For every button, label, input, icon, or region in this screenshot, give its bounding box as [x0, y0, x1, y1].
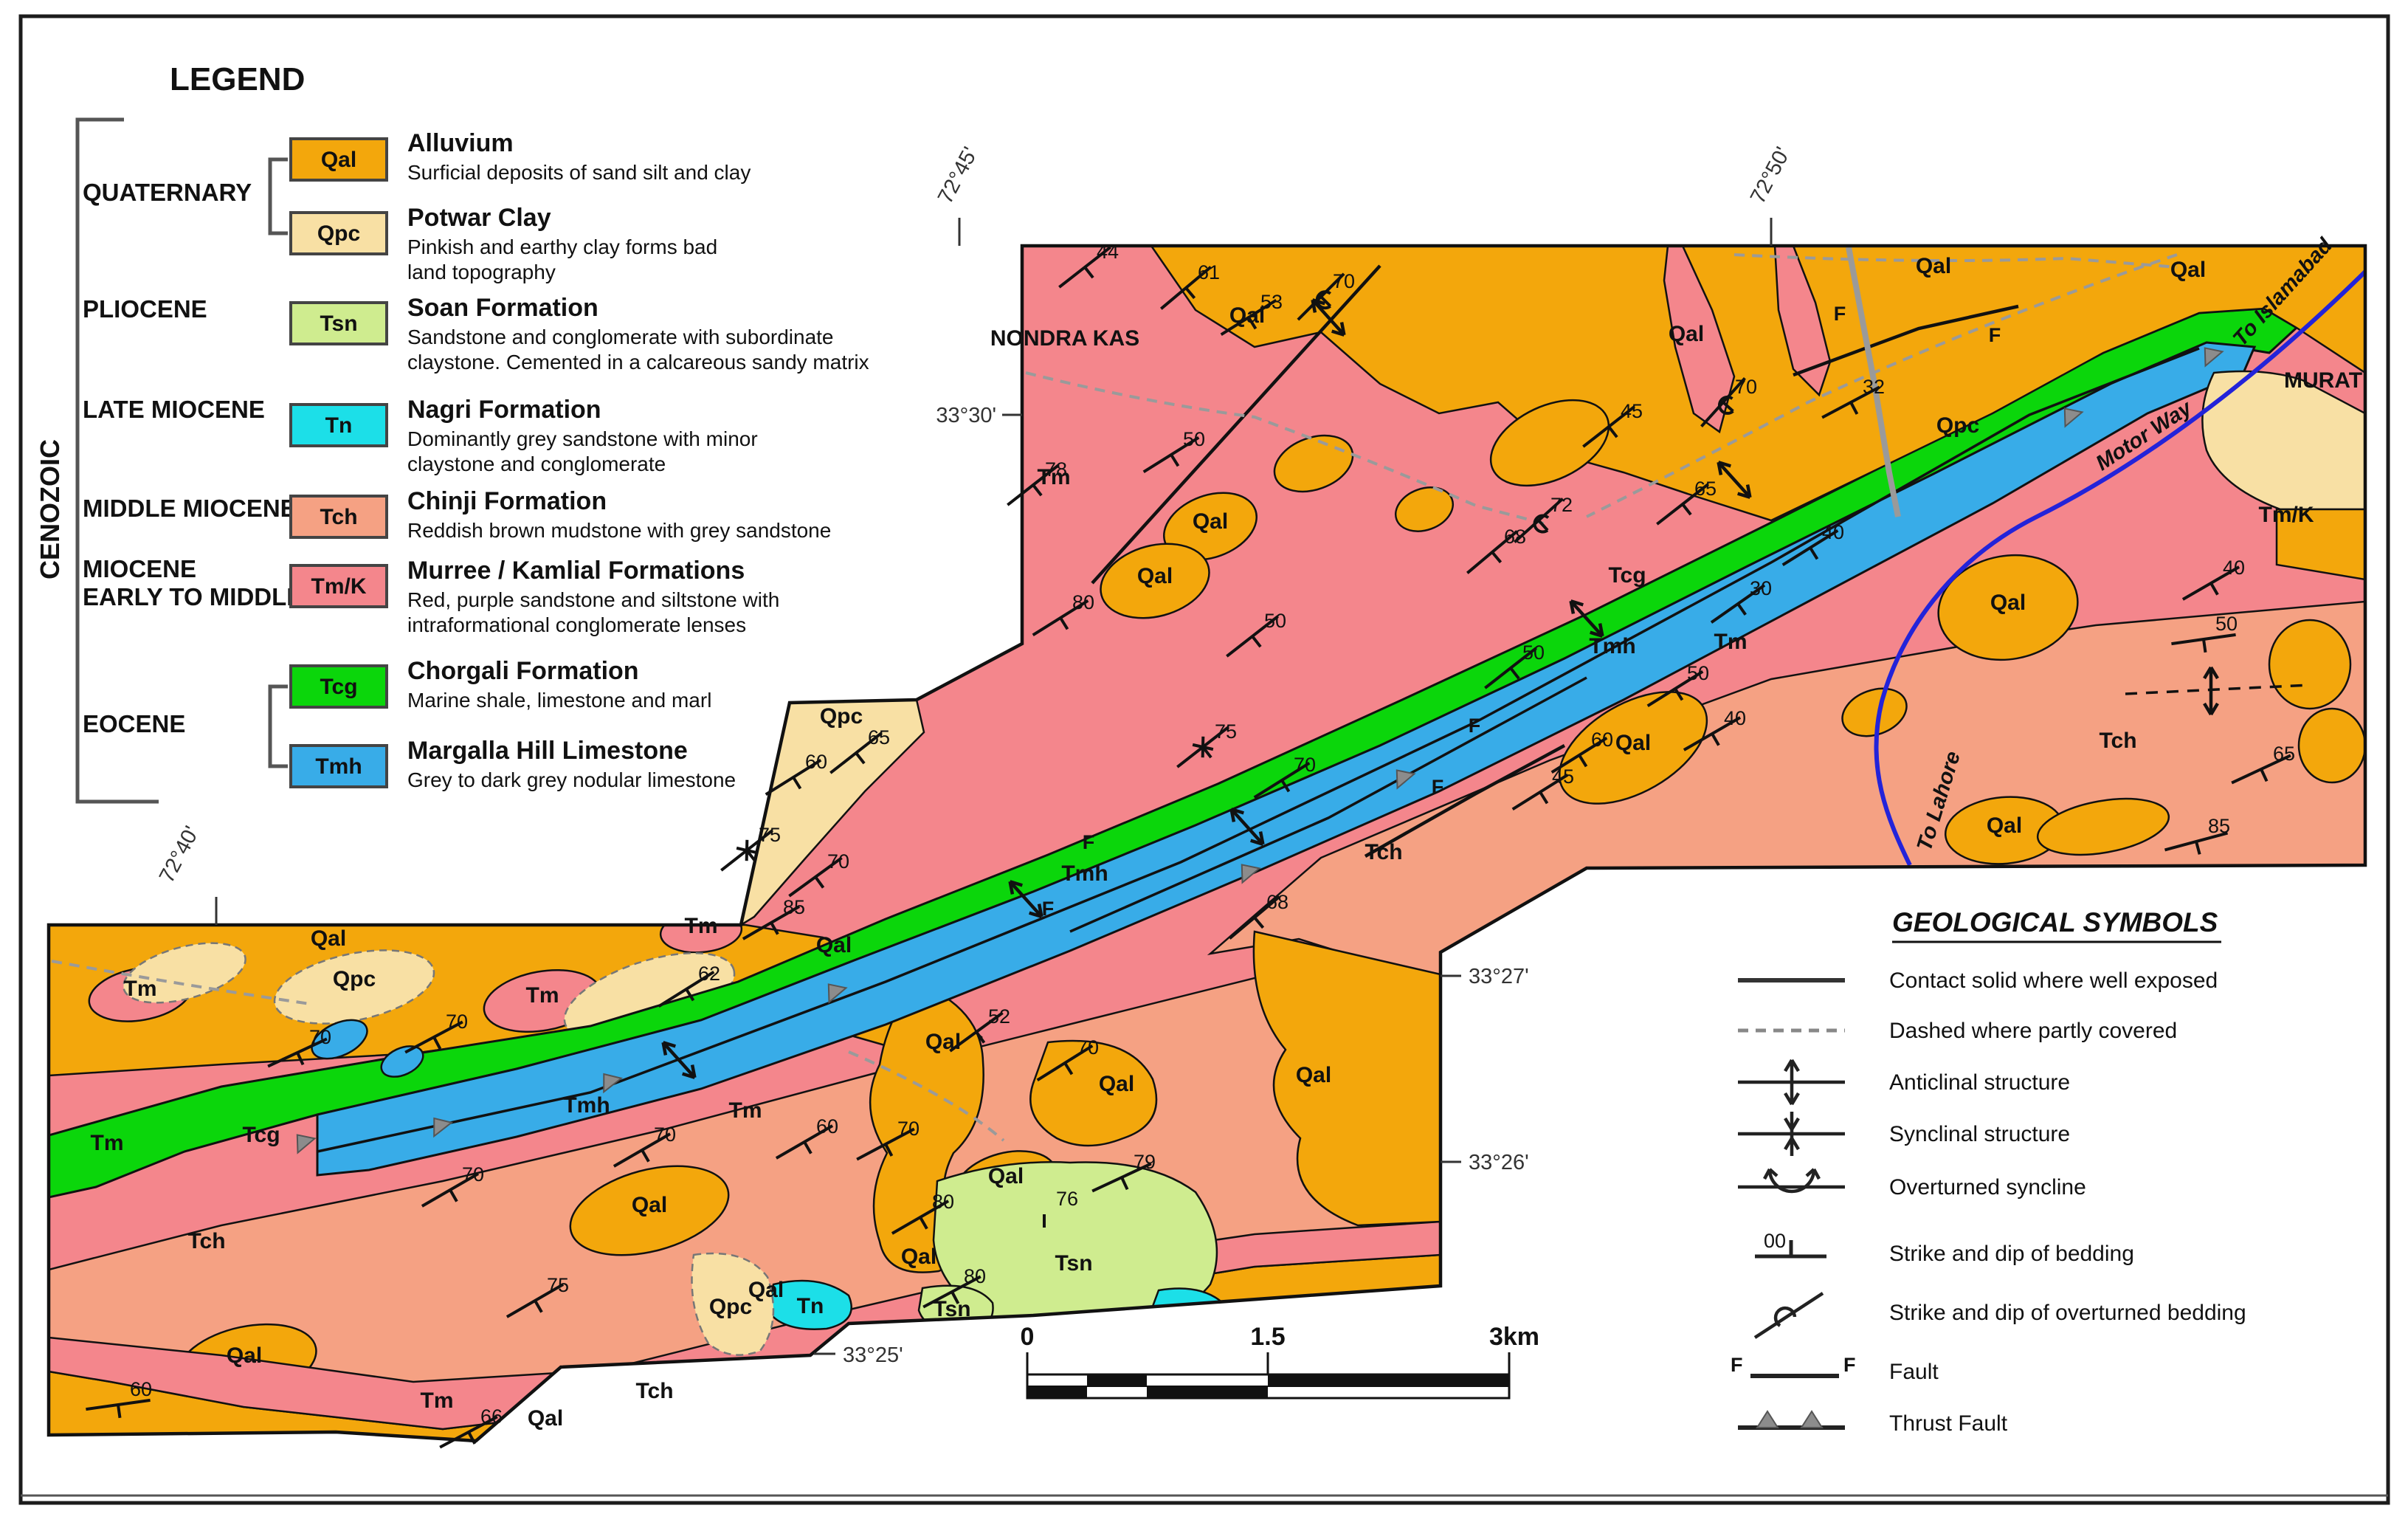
- unit-desc-qal: Surficial deposits of sand silt and clay: [407, 161, 751, 184]
- dip-value: 45: [1552, 765, 1574, 788]
- code-qpc: Qpc: [317, 221, 360, 246]
- symbol-label-anticline: Anticlinal structure: [1889, 1070, 2070, 1095]
- map-unit-label: Qal: [528, 1406, 563, 1431]
- dip-value: 80: [1072, 591, 1094, 613]
- unit-name-qal: Alluvium: [407, 129, 514, 157]
- dip-value: 44: [1097, 241, 1119, 263]
- unit-name-tmh: Margalla Hill Limestone: [407, 737, 688, 765]
- overturned-syncline-icon: [1738, 1169, 1845, 1191]
- geological-symbols-panel: GEOLOGICAL SYMBOLS Contact solid where w…: [1731, 907, 2246, 1436]
- scale-0: 0: [1021, 1323, 1035, 1351]
- dip-value: 50: [1183, 428, 1205, 450]
- bedding-icon: 00: [1755, 1230, 1826, 1256]
- unit-desc-tsn-1: Sandstone and conglomerate with subordin…: [407, 326, 834, 348]
- scale-bar: 0 1.5 3km: [1021, 1323, 1539, 1398]
- fault-letter: F: [1834, 303, 1846, 325]
- dip-value: 80: [964, 1265, 986, 1287]
- dip-value: 65: [868, 726, 890, 748]
- unit-name-tsn: Soan Formation: [407, 294, 598, 322]
- legend-title: LEGEND: [170, 61, 305, 97]
- unit-desc-tmk-1: Red, purple sandstone and siltstone with: [407, 588, 779, 611]
- symbol-label-dashed: Dashed where partly covered: [1889, 1019, 2177, 1043]
- unit-name-tcg: Chorgali Formation: [407, 657, 639, 685]
- map-unit-label: Qal: [1229, 303, 1265, 328]
- scale-1-5: 1.5: [1250, 1323, 1285, 1351]
- place-label: NONDRA KAS: [990, 326, 1139, 351]
- overturned-bedding-icon: [1755, 1293, 1823, 1338]
- map-unit-label: Qal: [1296, 1063, 1331, 1087]
- map-unit-label: Qal: [227, 1343, 262, 1368]
- dip-value: 40: [2223, 557, 2245, 579]
- symbol-label-contact: Contact solid where well exposed: [1889, 968, 2218, 993]
- unit-desc-tmh: Grey to dark grey nodular limestone: [407, 768, 736, 791]
- map-unit-label: Qal: [901, 1245, 936, 1269]
- map-unit-label: Qpc: [333, 967, 376, 991]
- era-pliocene: PLIOCENE: [83, 295, 207, 323]
- symbol-label-fault: Fault: [1889, 1360, 1939, 1384]
- scale-3km: 3km: [1489, 1323, 1539, 1351]
- dip-value: 70: [827, 850, 849, 873]
- dip-value: 72: [1550, 494, 1573, 516]
- map-unit-label: Tm: [421, 1388, 454, 1413]
- dip-value: 50: [2215, 613, 2238, 635]
- map-unit-label: Tm: [1038, 465, 1071, 489]
- dip-value: 50: [1687, 662, 1709, 684]
- dip-value: 66: [480, 1405, 503, 1428]
- unit-name-tn: Nagri Formation: [407, 396, 601, 424]
- map-unit-label: Qal: [925, 1030, 961, 1054]
- fault-f-left: F: [1731, 1354, 1743, 1376]
- dip-value: 40: [1724, 707, 1746, 729]
- map-unit-label: Qal: [1193, 509, 1228, 534]
- dip-value: 70: [462, 1163, 484, 1185]
- map-unit-label: Qal: [1916, 254, 1951, 278]
- map-unit-label: Qal: [1615, 731, 1651, 755]
- coordinate-label: 33°27': [1469, 965, 1529, 988]
- map-unit-label: Tm: [1714, 630, 1748, 654]
- dip-value: 50: [1264, 610, 1286, 632]
- symbol-label-overturned-bedding: Strike and dip of overturned bedding: [1889, 1301, 2246, 1325]
- dip-value: 70: [1735, 376, 1757, 398]
- map-unit-label: Tm/K: [2259, 503, 2314, 527]
- fault-icon: F F: [1731, 1354, 1856, 1376]
- symbols-title: GEOLOGICAL SYMBOLS: [1892, 907, 2218, 937]
- map-unit-label: Tcg: [1608, 563, 1646, 588]
- eocene-bracket: [270, 686, 288, 766]
- dip-value: 52: [988, 1005, 1010, 1028]
- map-unit-label: Qal: [816, 933, 852, 957]
- map-unit-label: Qal: [748, 1278, 784, 1302]
- cenozoic-label: CENOZOIC: [35, 439, 65, 579]
- unit-desc-qpc-1: Pinkish and earthy clay forms bad: [407, 235, 717, 258]
- map-unit-label: Qal: [1669, 322, 1704, 346]
- dip-value: 70: [1294, 754, 1316, 776]
- dip-value: 70: [897, 1118, 920, 1140]
- code-tch: Tch: [320, 505, 357, 529]
- map-unit-label: Qal: [311, 926, 346, 951]
- dip-value: 76: [1056, 1188, 1078, 1210]
- bedding-value: 00: [1764, 1230, 1786, 1252]
- dip-value: 70: [1333, 270, 1355, 292]
- era-late-miocene: LATE MIOCENE: [83, 396, 265, 423]
- map-unit-label: Qal: [1987, 813, 2022, 838]
- dip-value: 60: [130, 1378, 152, 1400]
- map-unit-label: Qpc: [1936, 413, 1979, 438]
- dip-value: 40: [1822, 521, 1844, 543]
- unit-desc-tcg: Marine shale, limestone and marl: [407, 689, 711, 712]
- code-qal: Qal: [321, 148, 356, 172]
- legend-panel: LEGEND CENOZOIC QUATERNARY PLIOCENE LATE…: [35, 61, 869, 802]
- map-unit-label: Tm: [91, 1131, 124, 1155]
- fault-letter: F: [1042, 898, 1055, 920]
- fault-letter: F: [1432, 776, 1444, 798]
- symbol-label-syncline: Synclinal structure: [1889, 1122, 2070, 1146]
- dip-value: 62: [698, 963, 720, 985]
- dip-value: 70: [309, 1026, 331, 1048]
- map-unit-label: Tmh: [563, 1093, 610, 1118]
- era-middle-miocene: MIDDLE MIOCENE: [83, 495, 297, 522]
- anticline-icon: [1738, 1060, 1845, 1104]
- dip-value: 30: [1750, 577, 1772, 599]
- code-tmk: Tm/K: [311, 574, 367, 599]
- map-unit-label: Qpc: [709, 1295, 752, 1319]
- map-unit-label: Tmh: [1061, 861, 1108, 886]
- syncline-icon: [1738, 1112, 1845, 1156]
- figure-canvas: 4461537050788045687265304032705050604540…: [0, 0, 2408, 1528]
- qal-blob: [2269, 620, 2350, 709]
- dip-value: 75: [547, 1274, 569, 1296]
- dip-value: 70: [1077, 1036, 1099, 1059]
- symbol-label-bedding: Strike and dip of bedding: [1889, 1242, 2134, 1266]
- dip-value: 75: [1215, 720, 1237, 743]
- map-unit-label: Qal: [2170, 258, 2206, 282]
- coordinate-label: 72°45': [934, 143, 983, 207]
- map-unit-label: Tm: [124, 977, 157, 1001]
- era-miocene-2: EARLY TO MIDDLE: [83, 583, 303, 610]
- fault-letter: F: [1469, 715, 1481, 737]
- map-unit-label: Tm: [526, 983, 559, 1008]
- dip-value: 79: [1134, 1151, 1156, 1173]
- dip-value: 60: [805, 751, 827, 773]
- code-tsn: Tsn: [320, 312, 357, 336]
- symbol-label-overturned-syncline: Overturned syncline: [1889, 1175, 2086, 1200]
- code-tn: Tn: [325, 413, 353, 438]
- thrust-fault-icon: [1738, 1411, 1845, 1428]
- unit-desc-qpc-2: land topography: [407, 261, 556, 283]
- dip-value: 45: [1621, 400, 1643, 422]
- era-eocene: EOCENE: [83, 710, 185, 737]
- map-unit-label: Qal: [1990, 591, 2026, 615]
- map-unit-label: Tsn: [933, 1297, 970, 1321]
- dip-value: 61: [1198, 261, 1220, 283]
- cenozoic-bracket: [77, 120, 159, 802]
- dip-value: 85: [783, 896, 805, 918]
- dip-value: 32: [1863, 376, 1885, 398]
- dip-value: 65: [2273, 743, 2295, 765]
- map-unit-label: Qal: [1099, 1072, 1134, 1096]
- dip-value: 70: [654, 1123, 676, 1146]
- era-miocene-1: MIOCENE: [83, 555, 196, 582]
- map-unit-label: Tch: [187, 1229, 225, 1253]
- symbol-label-thrust-fault: Thrust Fault: [1889, 1411, 2008, 1436]
- qal-blob: [2299, 709, 2365, 782]
- era-quaternary: QUATERNARY: [83, 179, 252, 206]
- fault-letter: F: [1989, 324, 2001, 346]
- dip-value: 65: [1694, 478, 1717, 500]
- code-tcg: Tcg: [320, 675, 357, 699]
- fault-letter: F: [1083, 831, 1095, 853]
- unit-desc-tn-1: Dominantly grey sandstone with minor: [407, 427, 758, 450]
- map-unit-label: Tn: [797, 1294, 824, 1318]
- coordinate-label: 33°26': [1469, 1151, 1529, 1174]
- unit-desc-tmk-2: intraformational conglomerate lenses: [407, 613, 746, 636]
- dip-value: 70: [446, 1011, 468, 1033]
- map-unit-label: Tm: [685, 914, 718, 938]
- code-tmh: Tmh: [315, 754, 362, 779]
- dip-value: 75: [759, 824, 781, 846]
- map-unit-label: Tch: [2099, 729, 2136, 753]
- dip-value: 60: [1591, 729, 1613, 751]
- dip-value: 85: [2208, 815, 2230, 837]
- coordinate-label: 33°25': [843, 1343, 903, 1367]
- map-unit-label: Tch: [1365, 840, 1402, 864]
- unit-desc-tch: Reddish brown mudstone with grey sandsto…: [407, 519, 831, 542]
- quaternary-bracket: [270, 159, 288, 233]
- map-unit-label: Tcg: [242, 1123, 280, 1147]
- place-label: MURAT: [2284, 368, 2362, 393]
- dip-value: 60: [816, 1115, 838, 1138]
- coordinate-label: 33°30': [936, 404, 996, 427]
- dip-value: 50: [1522, 641, 1545, 664]
- unit-desc-tsn-2: claystone. Cemented in a calcareous sand…: [407, 351, 869, 374]
- map-unit-label: Qal: [1137, 564, 1173, 588]
- map-unit-label: Qpc: [820, 704, 863, 729]
- dip-value: 80: [932, 1191, 954, 1213]
- map-unit-label: Tm: [729, 1098, 762, 1123]
- map-unit-label: Tsn: [1055, 1251, 1092, 1276]
- unit-name-tmk: Murree / Kamlial Formations: [407, 557, 745, 585]
- fault-f-right: F: [1843, 1354, 1856, 1376]
- map-unit-label: Qal: [988, 1164, 1024, 1188]
- coordinate-label: 72°50': [1746, 143, 1795, 207]
- map-unit-label: Tch: [635, 1379, 673, 1403]
- unit-name-qpc: Potwar Clay: [407, 204, 551, 232]
- map-unit-label: Tmh: [1589, 634, 1635, 658]
- coordinate-label: 72°40': [155, 822, 204, 887]
- unit-name-tch: Chinji Formation: [407, 487, 607, 515]
- map-unit-label: Qal: [632, 1193, 667, 1217]
- geologic-map-figure: 4461537050788045687265304032705050604540…: [0, 0, 2408, 1528]
- scale-bar-blocks: [1027, 1374, 1509, 1398]
- dip-value: 68: [1266, 891, 1288, 913]
- unit-desc-tn-2: claystone and conglomerate: [407, 452, 666, 475]
